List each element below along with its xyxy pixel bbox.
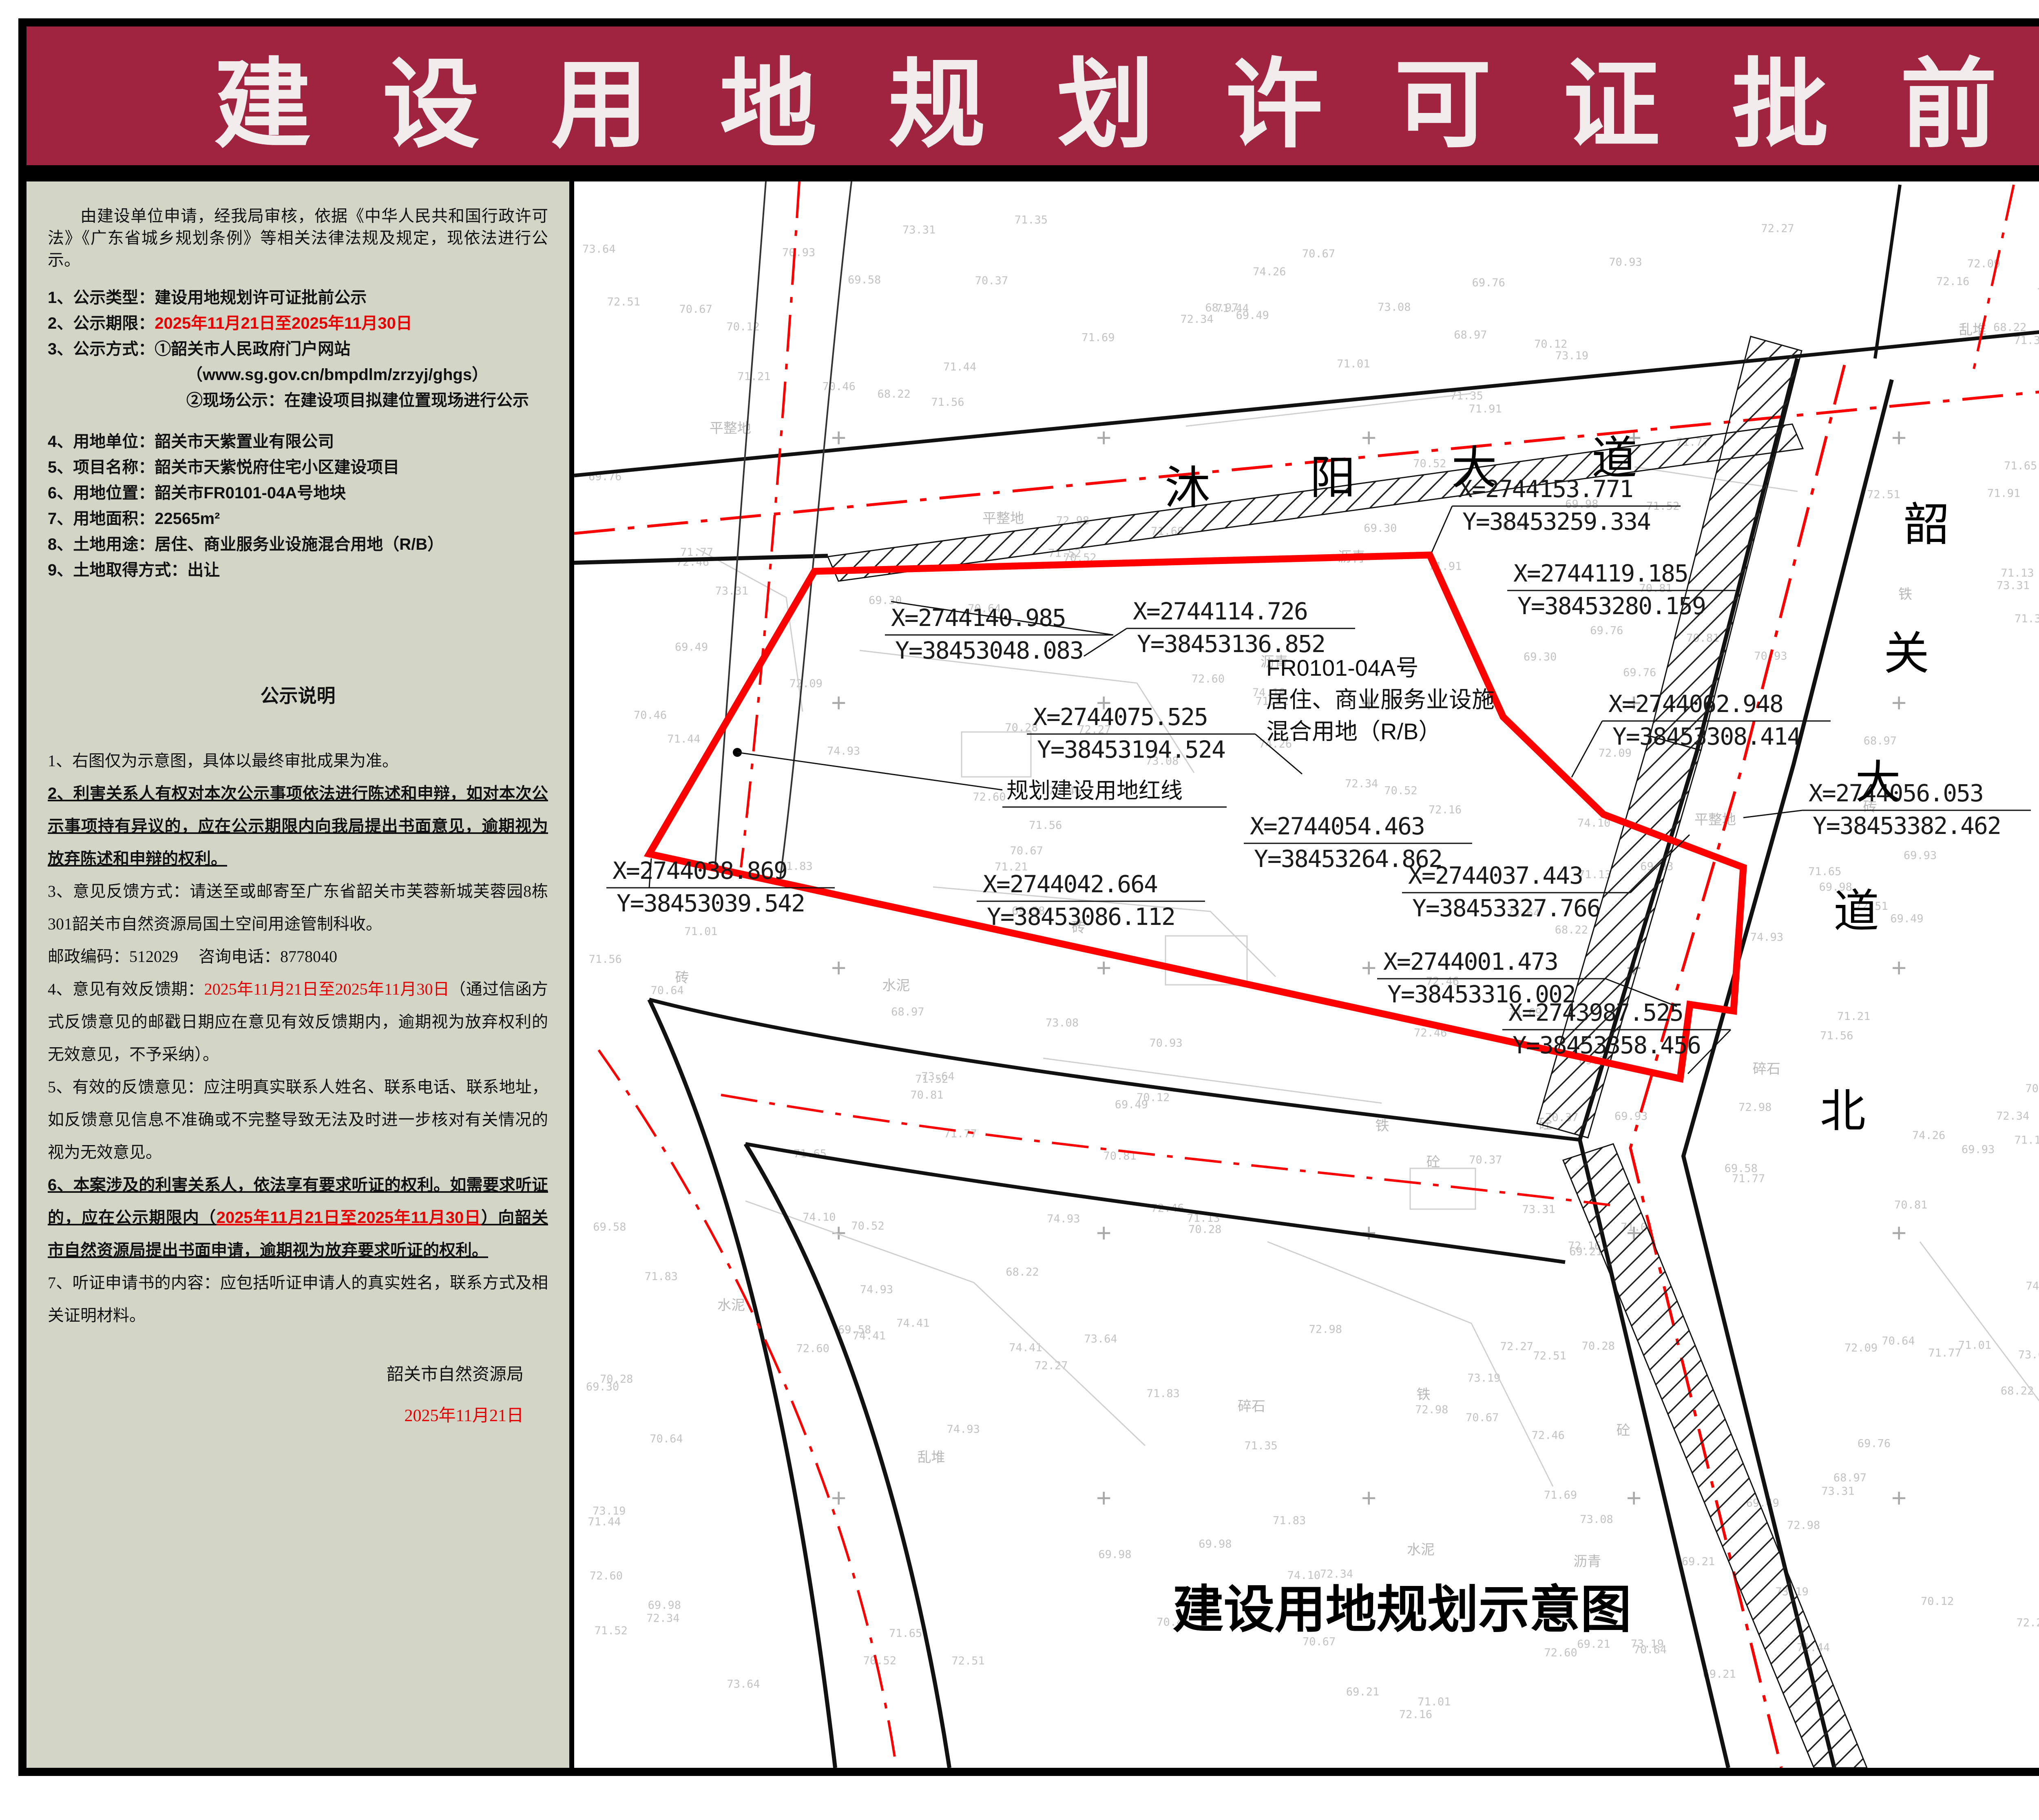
topo-mark: 69.49 bbox=[675, 641, 708, 653]
svg-text:混合用地（R/B）: 混合用地（R/B） bbox=[1266, 719, 1441, 744]
topo-mark: 72.09 bbox=[790, 677, 823, 690]
svg-text:X=2744114.726: X=2744114.726 bbox=[1133, 597, 1307, 625]
topo-mark: 69.58 bbox=[1725, 1162, 1758, 1175]
planning-map-area: 71.5272.3471.4470.8169.9372.4671.6970.52… bbox=[574, 181, 2039, 1768]
statement-6: 6、本案涉及的利害关系人，依法享有要求听证的权利。如需要求听证的，应在公示期限内… bbox=[48, 1169, 548, 1267]
topo-mark: 70.93 bbox=[782, 246, 815, 259]
hearing-period: 2025年11月21日至2025年11月30日 bbox=[217, 1209, 481, 1227]
svg-text:Y=38453194.524: Y=38453194.524 bbox=[1037, 736, 1225, 763]
svg-text:Y=38453308.414: Y=38453308.414 bbox=[1612, 723, 1800, 750]
topo-mark: 70.64 bbox=[1634, 1643, 1667, 1656]
topo-mark: 70.37 bbox=[2026, 1082, 2039, 1095]
topo-mark: 74.93 bbox=[1047, 1213, 1080, 1225]
topo-mark: 铁 bbox=[1417, 1387, 1431, 1402]
topo-mark: 69.76 bbox=[1472, 276, 1505, 289]
svg-text:大: 大 bbox=[1855, 758, 1901, 808]
topo-mark: 72.34 bbox=[1996, 1110, 2029, 1123]
title-banner: 建 设 用 地 规 划 许 可 证 批 前 公 示 bbox=[18, 18, 2039, 173]
topo-mark: 碎石 bbox=[1753, 1061, 1780, 1077]
topo-mark: 68.97 bbox=[1864, 735, 1897, 747]
topo-mark: 71.01 bbox=[684, 925, 717, 938]
notice-item-6: 6、用地位置：韶关市FR0101-04A号地块 bbox=[48, 480, 548, 506]
svg-text:Y=38453280.159: Y=38453280.159 bbox=[1517, 592, 1705, 620]
topo-mark: 70.64 bbox=[650, 1433, 683, 1445]
svg-text:X=2744119.185: X=2744119.185 bbox=[1513, 559, 1688, 587]
topo-mark: 72.09 bbox=[1844, 1342, 1878, 1354]
topo-mark: 71.01 bbox=[1958, 1339, 1991, 1352]
topo-mark: 72.60 bbox=[1192, 672, 1225, 685]
topo-mark: 71.77 bbox=[680, 546, 713, 559]
topo-mark: 70.52 bbox=[851, 1220, 884, 1232]
topo-mark: 71.69 bbox=[1081, 332, 1115, 344]
topo-mark: 乱堆 bbox=[918, 1450, 945, 1465]
svg-text:Y=38453039.542: Y=38453039.542 bbox=[617, 889, 805, 917]
topo-mark: 70.28 bbox=[1582, 1340, 1615, 1353]
topo-mark: 74.26 bbox=[1253, 265, 1286, 278]
svg-text:X=2744001.473: X=2744001.473 bbox=[1383, 948, 1558, 975]
topo-mark: 69.21 bbox=[1682, 1555, 1715, 1568]
topo-mark: 68.22 bbox=[1555, 924, 1588, 936]
north-road-centerline bbox=[1973, 185, 2014, 373]
topo-mark: 铁 bbox=[1375, 1118, 1389, 1134]
topo-mark: 70.93 bbox=[1609, 256, 1642, 269]
svg-text:Y=38453259.334: Y=38453259.334 bbox=[1462, 508, 1650, 535]
topo-mark: 71.91 bbox=[1468, 403, 1502, 416]
topo-mark: 71.35 bbox=[1015, 214, 1048, 226]
svg-text:大: 大 bbox=[1451, 443, 1497, 494]
topo-mark: 71.56 bbox=[1820, 1029, 1853, 1042]
topo-mark: 71.01 bbox=[1337, 358, 1370, 370]
topo-mark: 70.52 bbox=[1384, 784, 1417, 797]
topo-mark: 水泥 bbox=[1407, 1542, 1435, 1558]
svg-text:X=2744042.664: X=2744042.664 bbox=[983, 870, 1157, 898]
page-title: 建 设 用 地 规 划 许 可 证 批 前 公 示 bbox=[214, 26, 2039, 166]
topo-mark: 74.26 bbox=[1912, 1129, 1945, 1142]
topo-mark: 73.64 bbox=[727, 1678, 760, 1690]
topo-mark: + bbox=[1891, 423, 1906, 452]
topo-mark: 71.65 bbox=[2004, 460, 2037, 472]
topo-mark: 70.12 bbox=[1921, 1595, 1954, 1608]
topo-mark: 68.22 bbox=[1993, 321, 2026, 334]
topo-mark: 砼 bbox=[1426, 1154, 1440, 1170]
coordinate-label: X=2744140.985Y=38453048.083 bbox=[885, 602, 1113, 664]
topo-mark: 70.93 bbox=[1149, 1037, 1182, 1050]
topo-mark: 69.93 bbox=[1614, 1110, 1648, 1123]
notice-item-3-url: （www.sg.gov.cn/bmpdlm/zrzyj/ghgs） bbox=[48, 362, 548, 388]
topo-mark: 72.34 bbox=[1345, 778, 1378, 790]
topo-mark: 69.30 bbox=[1364, 522, 1397, 535]
topo-mark: 74.41 bbox=[896, 1317, 929, 1330]
topo-mark: 73.08 bbox=[2018, 1349, 2039, 1361]
south-road-centerline bbox=[599, 1050, 896, 1768]
planning-notice-page: { "banner": { "title": "建 设 用 地 规 划 许 可 … bbox=[0, 0, 2039, 1820]
topo-mark: 68.97 bbox=[1454, 329, 1487, 341]
topo-mark: 71.13 bbox=[1578, 868, 1611, 881]
statement-3b: 邮政编码：512029 咨询电话：8778040 bbox=[48, 940, 548, 973]
topo-mark: 71.35 bbox=[2015, 613, 2039, 625]
topo-mark: 72.16 bbox=[1429, 804, 1462, 816]
statement-2: 2、利害关系人有权对本次公示事项依法进行陈述和申辩，如对本次公示事项持有异议的，… bbox=[48, 777, 548, 875]
topo-mark: 68.22 bbox=[878, 388, 911, 400]
topo-mark: + bbox=[1891, 688, 1906, 717]
topo-mark: 71.35 bbox=[2014, 334, 2039, 347]
signature-date: 2025年11月21日 bbox=[48, 1402, 548, 1426]
topo-mark: 72.98 bbox=[1415, 1404, 1448, 1416]
statement-3: 3、意见反馈方式：请送至或邮寄至广东省韶关市芙蓉新城芙蓉园8栋301韶关市自然资… bbox=[48, 875, 548, 940]
topo-mark: 69.58 bbox=[593, 1221, 626, 1233]
svg-text:Y=38453382.462: Y=38453382.462 bbox=[1813, 812, 2001, 840]
topo-mark: 73.31 bbox=[1522, 1203, 1555, 1216]
topo-mark: 74.93 bbox=[1750, 931, 1783, 944]
notice-intro: 由建设单位申请，经我局审核，依据《中华人民共和国行政许可法》《广东省城乡规划条例… bbox=[48, 205, 548, 271]
topo-mark: 72.34 bbox=[646, 1612, 679, 1625]
notice-item-3: 3、公示方式：①韶关市人民政府门户网站 bbox=[48, 336, 548, 362]
topo-mark: 71.83 bbox=[1147, 1387, 1180, 1400]
statement-title: 公示说明 bbox=[48, 681, 548, 708]
svg-text:X=2744075.525: X=2744075.525 bbox=[1033, 703, 1207, 731]
svg-text:X=2743987.525: X=2743987.525 bbox=[1508, 999, 1683, 1026]
notice-item-8: 8、土地用途：居住、商业服务业设施混合用地（R/B） bbox=[48, 532, 548, 557]
notice-item-4: 4、用地单位：韶关市天紫置业有限公司 bbox=[48, 429, 548, 455]
statement-5: 5、有效的反馈意见：应注明真实联系人姓名、联系电话、联系地址，如反馈意见信息不准… bbox=[48, 1071, 548, 1169]
topo-mark: 砼 bbox=[1617, 1423, 1630, 1438]
topo-mark: 70.46 bbox=[823, 380, 856, 393]
svg-text:X=2744054.463: X=2744054.463 bbox=[1250, 812, 1424, 840]
topo-mark: 73.64 bbox=[582, 243, 615, 256]
topo-mark: 71.83 bbox=[1273, 1515, 1306, 1527]
topo-mark: 71.13 bbox=[2001, 567, 2034, 579]
svg-text:阳: 阳 bbox=[1310, 453, 1356, 504]
topo-mark: 71.69 bbox=[1544, 1489, 1577, 1502]
topo-mark: 74.93 bbox=[860, 1283, 893, 1296]
topo-mark: + bbox=[831, 953, 846, 982]
topo-mark: 70.67 bbox=[1302, 248, 1335, 260]
notice-item-3-site: ②现场公示：在建设项目拟建位置现场进行公示 bbox=[48, 388, 548, 414]
topo-mark: 69.21 bbox=[1346, 1686, 1379, 1698]
topo-mark: 72.51 bbox=[1533, 1349, 1566, 1362]
svg-text:关: 关 bbox=[1884, 629, 1929, 679]
topo-mark: + bbox=[1891, 953, 1906, 982]
topo-mark: + bbox=[1361, 1483, 1376, 1513]
topo-mark: 72.60 bbox=[590, 1570, 623, 1582]
topo-mark: 71.56 bbox=[589, 953, 622, 966]
topo-mark: 69.58 bbox=[848, 274, 881, 286]
topo-mark: 72.27 bbox=[1500, 1340, 1533, 1353]
svg-text:道: 道 bbox=[1592, 433, 1637, 484]
topo-mark: 沥青 bbox=[1573, 1554, 1601, 1569]
topo-mark: 73.19 bbox=[1555, 349, 1588, 362]
svg-text:X=2744062.948: X=2744062.948 bbox=[1608, 690, 1783, 718]
redline-label: 规划建设用地红线 bbox=[1006, 778, 1183, 803]
topo-mark: 70.28 bbox=[1188, 1223, 1221, 1236]
notice-item-7: 7、用地面积：22565m² bbox=[48, 506, 548, 532]
topo-mark: 69.98 bbox=[1098, 1548, 1131, 1561]
topo-mark: 69.98 bbox=[648, 1599, 681, 1612]
topo-mark: 70.37 bbox=[975, 274, 1008, 287]
topo-mark: 碎石 bbox=[1238, 1399, 1265, 1414]
topo-mark: + bbox=[831, 688, 846, 717]
topo-mark: 铁 bbox=[1898, 587, 1912, 602]
topo-mark: 平整地 bbox=[982, 511, 1024, 526]
east-road-centerline bbox=[721, 1095, 1610, 1205]
topo-mark: 70.67 bbox=[1466, 1411, 1499, 1424]
topo-mark: 72.51 bbox=[1867, 488, 1900, 501]
topo-mark: 71.56 bbox=[1029, 819, 1062, 832]
topo-mark: 69.76 bbox=[1858, 1437, 1891, 1450]
topo-mark: 72.27 bbox=[1035, 1360, 1068, 1372]
topo-mark: 71.52 bbox=[595, 1625, 628, 1637]
topo-mark: + bbox=[1626, 1483, 1641, 1513]
topo-mark: 72.27 bbox=[2016, 1617, 2039, 1629]
topo-mark: 74.93 bbox=[827, 745, 860, 757]
topo-mark: 70.37 bbox=[1469, 1154, 1502, 1166]
topo-mark: 72.51 bbox=[951, 1654, 984, 1667]
shaoguan-hatch-1 bbox=[1650, 336, 1802, 750]
topo-mark: 71.44 bbox=[943, 360, 976, 373]
topo-mark: 72.51 bbox=[607, 296, 640, 308]
svg-text:Y=38453086.112: Y=38453086.112 bbox=[987, 903, 1175, 931]
topo-mark: 73.19 bbox=[1467, 1372, 1500, 1384]
topo-mark: 70.12 bbox=[1534, 338, 1567, 350]
topo-mark: 69.30 bbox=[1524, 651, 1557, 663]
svg-text:Y=38453136.852: Y=38453136.852 bbox=[1137, 630, 1325, 658]
topo-mark: 72.16 bbox=[1936, 275, 1969, 288]
topo-mark: 71.21 bbox=[1837, 1010, 1870, 1023]
topo-mark: 70.52 bbox=[863, 1654, 896, 1667]
topo-mark: 70.46 bbox=[634, 709, 667, 721]
topo-mark: 71.83 bbox=[645, 1270, 678, 1283]
svg-text:居住、商业服务业设施: 居住、商业服务业设施 bbox=[1266, 687, 1495, 712]
topo-mark: 69.30 bbox=[586, 1380, 619, 1393]
topo-mark: 71.52 bbox=[915, 1073, 948, 1086]
topo-mark: 74.41 bbox=[853, 1330, 886, 1342]
topo-mark: 69.76 bbox=[1623, 666, 1656, 679]
svg-text:道: 道 bbox=[1833, 887, 1879, 937]
topo-mark: 70.52 bbox=[1413, 458, 1446, 470]
topo-mark: 72.98 bbox=[1309, 1323, 1342, 1336]
muyang-north-edge bbox=[574, 316, 2039, 475]
topo-mark: 72.60 bbox=[796, 1342, 829, 1355]
topo-mark: + bbox=[1096, 1218, 1111, 1247]
topo-mark: 73.31 bbox=[902, 223, 935, 236]
coordinate-label: X=2744114.726Y=38453136.852 bbox=[1084, 597, 1355, 658]
topo-mark: 71.44 bbox=[588, 1515, 621, 1528]
topo-mark: + bbox=[1096, 423, 1111, 452]
svg-text:Y=38453048.083: Y=38453048.083 bbox=[895, 637, 1083, 664]
topo-mark: 68.22 bbox=[1006, 1266, 1039, 1278]
topo-mark: 72.27 bbox=[1761, 222, 1794, 235]
topo-mark: 71.01 bbox=[1418, 1696, 1451, 1708]
topo-mark: 69.49 bbox=[1236, 309, 1269, 322]
svg-text:FR0101-04A号: FR0101-04A号 bbox=[1266, 655, 1419, 681]
svg-text:X=2744140.985: X=2744140.985 bbox=[891, 604, 1066, 632]
topo-mark: 70.64 bbox=[1882, 1335, 1915, 1347]
notice-item-5: 5、项目名称：韶关市天紫悦府住宅小区建设项目 bbox=[48, 455, 548, 480]
west-road-centerline bbox=[741, 181, 799, 867]
main-frame: 由建设单位申请，经我局审核，依据《中华人民共和国行政许可法》《广东省城乡规划条例… bbox=[18, 173, 2039, 1776]
topo-mark: 73.31 bbox=[1821, 1485, 1854, 1498]
svg-text:X=2744037.443: X=2744037.443 bbox=[1408, 862, 1583, 889]
topo-mark: 平整地 bbox=[1694, 812, 1736, 828]
topo-mark: 72.60 bbox=[973, 791, 1006, 803]
topo-mark: 74.93 bbox=[947, 1423, 980, 1436]
topo-scatter-layer: 71.5272.3471.4470.8169.9372.4671.6970.52… bbox=[582, 214, 2039, 1721]
svg-text:韶: 韶 bbox=[1904, 500, 1949, 551]
topo-mark: 71.21 bbox=[737, 370, 770, 383]
statement-1: 1、右图仅为示意图，具体以最终审批成果为准。 bbox=[48, 745, 548, 777]
topo-mark: 68.97 bbox=[891, 1006, 924, 1018]
topo-mark: 71.91 bbox=[1987, 487, 2020, 500]
topo-mark: 71.13 bbox=[2015, 1134, 2039, 1146]
topo-mark: 69.98 bbox=[1199, 1538, 1232, 1550]
topo-mark: 73.08 bbox=[1580, 1513, 1613, 1526]
topo-mark: 69.49 bbox=[1890, 913, 1923, 925]
svg-text:X=2744038.869: X=2744038.869 bbox=[613, 857, 787, 885]
topo-mark: + bbox=[1891, 1218, 1906, 1247]
topo-mark: 72.98 bbox=[1738, 1101, 1771, 1114]
topo-mark: 70.64 bbox=[650, 984, 683, 997]
coordinate-label: X=2744075.525Y=38453194.524 bbox=[1027, 703, 1302, 774]
signature-authority: 韶关市自然资源局 bbox=[48, 1360, 548, 1385]
feedback-period: 2025年11月21日至2025年11月30日 bbox=[204, 980, 450, 998]
topo-mark: 72.60 bbox=[1544, 1647, 1577, 1659]
notice-item-2: 2、公示期限：2025年11月21日至2025年11月30日 bbox=[48, 311, 548, 336]
notice-item-9: 9、土地取得方式：出让 bbox=[48, 557, 548, 583]
topo-mark: 68.97 bbox=[1833, 1471, 1867, 1484]
topo-mark: 70.81 bbox=[1894, 1199, 1927, 1211]
topo-mark: 68.97 bbox=[1205, 301, 1238, 314]
topo-mark: 70.12 bbox=[1137, 1091, 1170, 1104]
topo-mark: 73.08 bbox=[1378, 301, 1411, 314]
topo-mark: + bbox=[1891, 1483, 1906, 1513]
topo-mark: + bbox=[1361, 953, 1376, 982]
topo-mark: 71.56 bbox=[931, 396, 964, 409]
notice-item-1: 1、公示类型：建设用地规划许可证批前公示 bbox=[48, 285, 548, 311]
topo-mark: 70.81 bbox=[910, 1089, 943, 1101]
topo-mark: 69.76 bbox=[1590, 624, 1623, 637]
topo-mark: + bbox=[1096, 1483, 1111, 1513]
topo-mark: + bbox=[831, 1483, 846, 1513]
topo-mark: 71.44 bbox=[667, 733, 700, 745]
topo-mark: 71.21 bbox=[2037, 287, 2039, 299]
svg-text:Y=38453327.766: Y=38453327.766 bbox=[1412, 894, 1600, 922]
statement-4: 4、意见有效反馈期：2025年11月21日至2025年11月30日（通过信函方式… bbox=[48, 973, 548, 1071]
topo-mark: 72.34 bbox=[1180, 313, 1213, 326]
topo-mark: 72.46 bbox=[1532, 1429, 1565, 1442]
topo-mark: 70.67 bbox=[1010, 845, 1043, 857]
topo-mark: 平整地 bbox=[710, 421, 751, 436]
notice-panel: 由建设单位申请，经我局审核，依据《中华人民共和国行政许可法》《广东省城乡规划条例… bbox=[27, 181, 574, 1768]
topo-mark: 73.31 bbox=[1997, 579, 2030, 592]
topo-mark: + bbox=[1361, 423, 1376, 452]
topo-mark: 69.93 bbox=[1962, 1143, 1995, 1156]
topo-mark: 72.16 bbox=[1399, 1708, 1432, 1721]
topo-mark: 71.65 bbox=[1808, 865, 1841, 878]
cadastral-lines bbox=[697, 394, 2039, 1609]
map-caption: 建设用地规划示意图 bbox=[1137, 1568, 1667, 1642]
statement-7: 7、听证申请书的内容：应包括听证申请人的真实姓名，联系方式及相关证明材料。 bbox=[48, 1267, 548, 1332]
topo-mark: 水泥 bbox=[882, 978, 910, 993]
topo-mark: 69.93 bbox=[1904, 849, 1937, 862]
topo-mark: 69.21 bbox=[1569, 1245, 1602, 1258]
topo-mark: 71.65 bbox=[889, 1627, 922, 1640]
topo-mark: 73.08 bbox=[1046, 1017, 1079, 1029]
topo-mark: 72.98 bbox=[1787, 1519, 1820, 1532]
notice-period: 2025年11月21日至2025年11月30日 bbox=[155, 314, 412, 332]
topo-mark: 水泥 bbox=[717, 1298, 745, 1313]
topo-mark: 70.67 bbox=[679, 303, 712, 316]
planning-map-svg: 71.5272.3471.4470.8169.9372.4671.6970.52… bbox=[574, 181, 2039, 1768]
topo-mark: 砖 bbox=[675, 970, 689, 986]
topo-mark: 71.35 bbox=[1244, 1440, 1277, 1452]
svg-text:北: 北 bbox=[1820, 1086, 1866, 1137]
topo-mark: 73.64 bbox=[1084, 1333, 1117, 1345]
topo-mark: 73.31 bbox=[715, 585, 748, 597]
topo-mark: 74.41 bbox=[2026, 1280, 2039, 1293]
parcel-label: FR0101-04A号 居住、商业服务业设施 混合用地（R/B） bbox=[1266, 655, 1495, 744]
svg-text:沐: 沐 bbox=[1165, 463, 1210, 514]
topo-mark: 73.19 bbox=[593, 1505, 626, 1517]
topo-mark: 71.77 bbox=[1928, 1347, 1961, 1360]
svg-text:Y=38453358.456: Y=38453358.456 bbox=[1513, 1031, 1701, 1059]
